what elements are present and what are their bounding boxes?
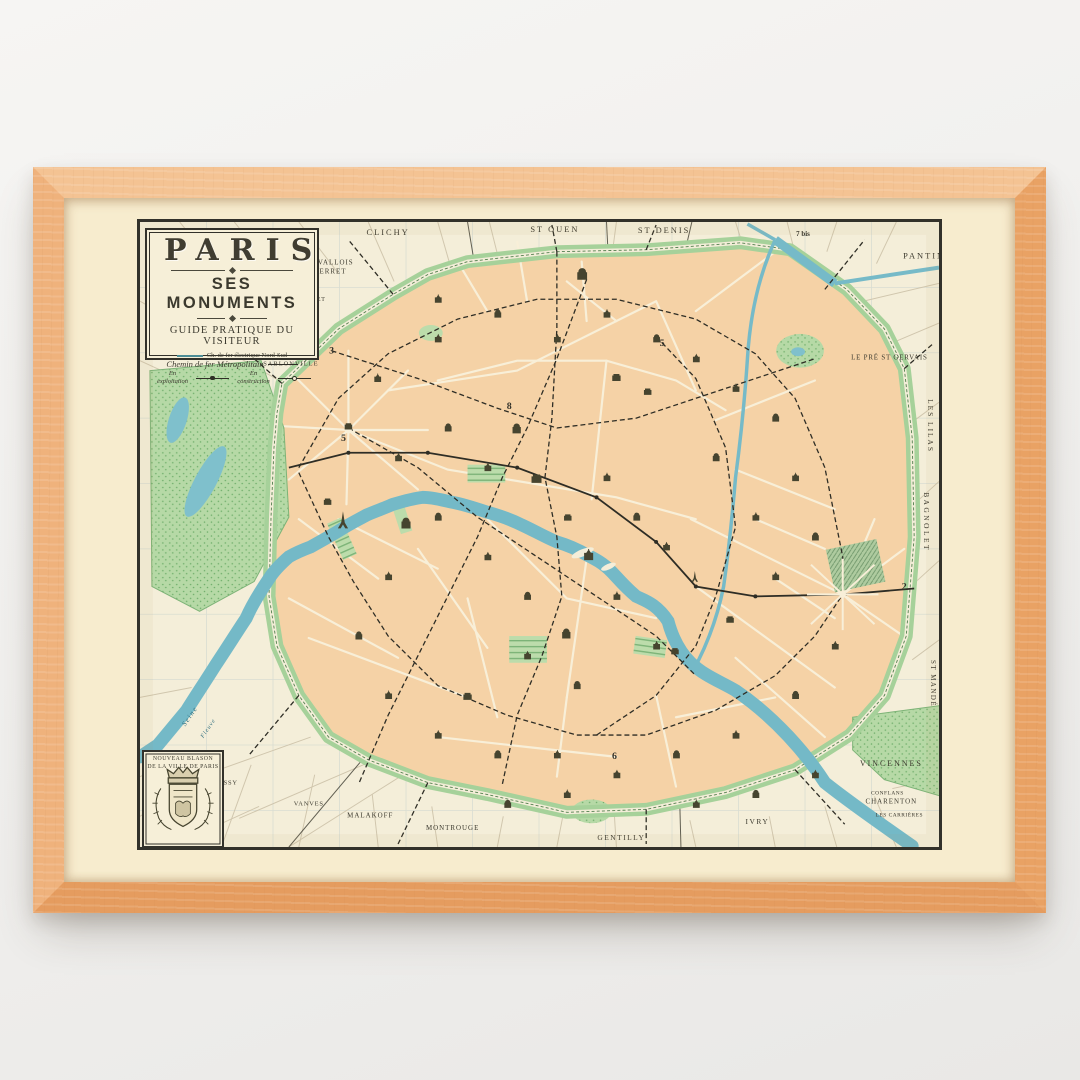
map-tagline: GUIDE PRATIQUE DU VISITEUR xyxy=(153,325,311,347)
legend-status-row: En exploitation En construction xyxy=(153,370,311,386)
construction-line-symbol xyxy=(278,375,311,381)
label-ivry: IVRY xyxy=(746,817,770,826)
line-number-2: 2 xyxy=(902,581,907,592)
legend-exploitation-label: En exploitation xyxy=(153,370,192,386)
map-subtitle: SES MONUMENTS xyxy=(153,275,311,313)
divider-ornament xyxy=(171,268,293,273)
divider-ornament-2 xyxy=(197,316,267,321)
line-number-3: 3 xyxy=(329,346,334,357)
label-vincennes: VINCENNES xyxy=(860,759,923,768)
line-number-5: 5 xyxy=(660,338,665,349)
label-vanves: VANVES xyxy=(294,800,324,807)
legend-metropolitain-label: Chemin de fer Métropolitain xyxy=(166,360,263,368)
line-number-6: 6 xyxy=(612,751,617,762)
coat-of-arms-inset: NOUVEAU BLASON DE LA VILLE DE PARIS xyxy=(142,750,224,848)
diamond-ornament-2 xyxy=(228,315,235,322)
picture-frame: CLICHY ST OUEN ST DENIS PANTIN LEVALLOIS… xyxy=(33,167,1046,913)
legend-construction-label: En construction xyxy=(233,370,273,386)
label-montrouge: MONTROUGE xyxy=(426,824,479,832)
nord-sud-line-symbol xyxy=(177,355,203,357)
metro-line-symbol xyxy=(268,364,298,365)
label-les-carrieres: LES CARRIÈRES xyxy=(876,810,923,818)
map-legend: Ch. de fer électrique Nord-Sud Chemin de… xyxy=(153,352,311,386)
line-number-8: 8 xyxy=(507,401,512,412)
line-number-5b: 5 xyxy=(341,433,346,444)
exploitation-line-symbol xyxy=(196,375,229,381)
wall: CLICHY ST OUEN ST DENIS PANTIN LEVALLOIS… xyxy=(0,0,1080,1080)
map-title: PARIS xyxy=(153,236,311,266)
coat-of-arms-drawing xyxy=(144,752,222,846)
diamond-ornament xyxy=(228,267,235,274)
title-cartouche: PARIS SES MONUMENTS GUIDE PRATIQUE DU VI… xyxy=(145,228,319,360)
label-perret: PERRET xyxy=(315,268,347,276)
label-conflans: CONFLANS xyxy=(871,791,904,797)
mat-border: CLICHY ST OUEN ST DENIS PANTIN LEVALLOIS… xyxy=(64,198,1015,882)
legend-metropolitain: Chemin de fer Métropolitain xyxy=(153,360,311,368)
label-charenton: CHARENTON xyxy=(866,797,918,805)
map-poster: CLICHY ST OUEN ST DENIS PANTIN LEVALLOIS… xyxy=(137,219,942,850)
label-malakoff: MALAKOFF xyxy=(347,811,393,819)
label-pre-st-gervais: LE PRÉ ST GERVAIS xyxy=(851,354,928,362)
city-area xyxy=(269,243,914,813)
